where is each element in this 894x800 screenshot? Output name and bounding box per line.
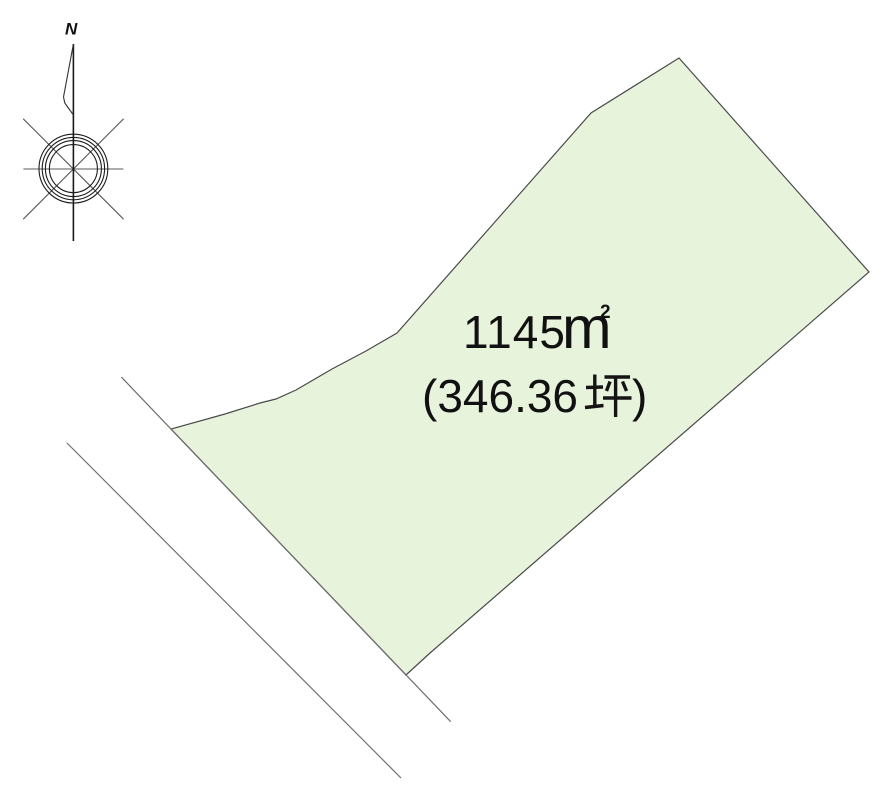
svg-text:N: N	[65, 20, 78, 39]
svg-text:): )	[632, 370, 647, 422]
svg-text:(346.36: (346.36	[422, 370, 578, 422]
svg-text:2: 2	[600, 302, 611, 323]
svg-text:1145: 1145	[463, 306, 566, 358]
